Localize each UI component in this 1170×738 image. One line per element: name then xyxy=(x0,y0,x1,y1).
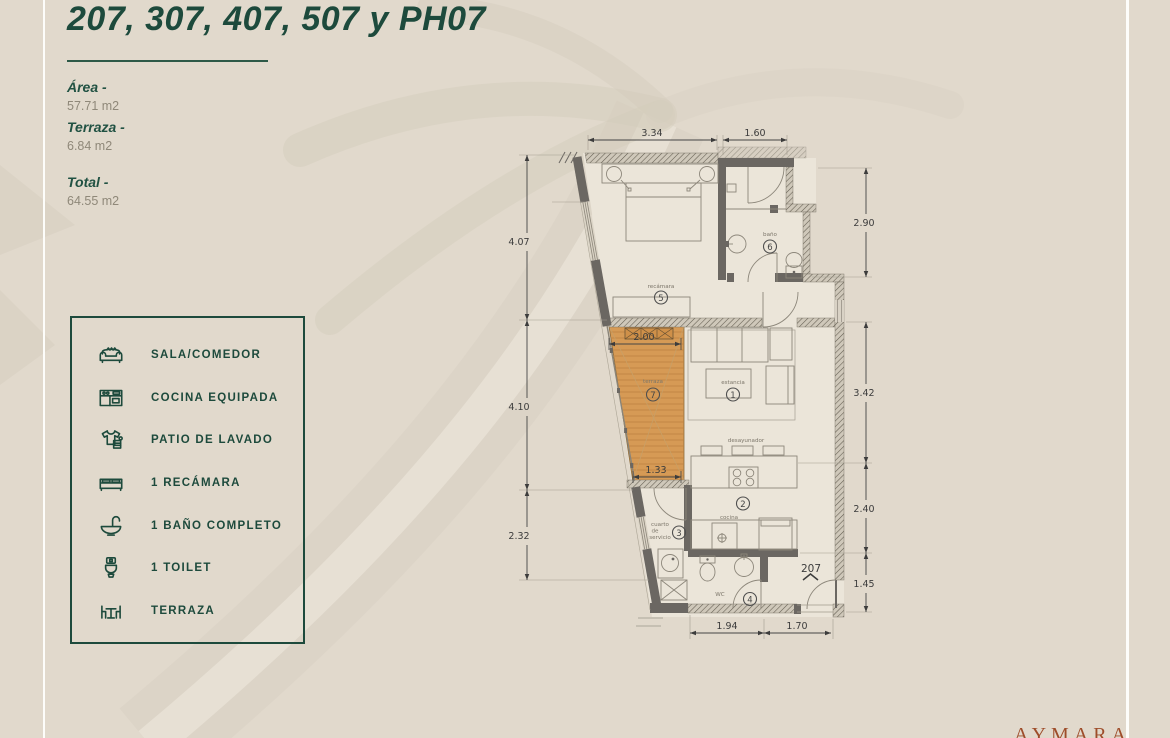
dim-right-bano: 2.90 xyxy=(853,218,874,229)
brand-logo: AYMARA xyxy=(1014,724,1131,738)
dim-left-terraza: 4.10 xyxy=(508,402,529,413)
dim-terraza-bottom: 1.33 xyxy=(645,465,666,476)
terrace-deck xyxy=(600,326,690,482)
legend-label: TERRAZA xyxy=(151,605,215,617)
label-cuarto-2: de xyxy=(652,529,660,535)
dim-right-cocina: 2.40 xyxy=(853,504,874,515)
dim-top-bano: 1.60 xyxy=(744,128,765,139)
left-rule xyxy=(43,0,45,738)
legend-item-toilet: 1 TOILET xyxy=(72,553,303,583)
dim-left-servicio: 2.32 xyxy=(508,531,529,542)
bath-sink-icon xyxy=(96,511,126,541)
right-wall-window xyxy=(835,300,844,322)
num-cuarto: 3 xyxy=(676,529,681,539)
area-value: 57.71 m2 xyxy=(67,97,125,115)
dim-left-recamara: 4.07 xyxy=(508,237,529,248)
num-cocina: 2 xyxy=(740,500,745,510)
num-recamara: 5 xyxy=(658,294,663,304)
terraza-label: Terraza - xyxy=(67,118,125,137)
flyer-page: 207, 307, 407, 507 y PH07 Área - 57.71 m… xyxy=(0,0,1170,738)
legend-item-bano: 1 BAÑO COMPLETO xyxy=(72,511,303,541)
legend-label: SALA/COMEDOR xyxy=(151,349,261,361)
laundry-icon xyxy=(96,425,126,455)
right-rule xyxy=(1126,0,1129,738)
legend-label: 1 TOILET xyxy=(151,562,212,574)
dim-bottom-entrada: 1.70 xyxy=(786,621,807,632)
dim-terraza-top: 2.00 xyxy=(633,332,654,343)
dim-right-estancia: 3.42 xyxy=(853,388,874,399)
bed-icon xyxy=(96,468,126,498)
sofa-icon xyxy=(96,340,126,370)
floorplan-drawing: 207 3.34 1.60 4.07 4.10 xyxy=(490,110,970,655)
legend-item-recamara: 1 RECÁMARA xyxy=(72,468,303,498)
toilet-icon xyxy=(96,553,126,583)
kitchen-icon xyxy=(96,383,126,413)
label-cocina: cocina xyxy=(720,515,738,521)
num-bano: 6 xyxy=(767,243,772,253)
label-bano: baño xyxy=(763,232,778,238)
legend-item-cocina: COCINA EQUIPADA xyxy=(72,383,303,413)
dim-bottom-wc: 1.94 xyxy=(716,621,737,632)
label-cuarto-1: cuarto xyxy=(651,522,670,528)
num-wc: 4 xyxy=(747,596,752,606)
label-terraza: terraza xyxy=(643,379,663,385)
legend-item-patio: PATIO DE LAVADO xyxy=(72,425,303,455)
legend-label: PATIO DE LAVADO xyxy=(151,434,273,446)
total-label: Total - xyxy=(67,173,125,192)
area-label: Área - xyxy=(67,78,125,97)
page-title: 207, 307, 407, 507 y PH07 xyxy=(67,0,486,39)
label-estancia: estancia xyxy=(721,380,745,386)
label-cuarto-3: servicio xyxy=(649,535,671,541)
label-recamara: recámara xyxy=(648,283,675,290)
title-underline xyxy=(67,60,268,62)
legend-label: 1 RECÁMARA xyxy=(151,477,241,489)
label-wc: WC xyxy=(715,592,725,598)
dim-right-entrada: 1.45 xyxy=(853,579,874,590)
total-value: 64.55 m2 xyxy=(67,192,125,210)
legend-item-terraza: TERRAZA xyxy=(72,596,303,626)
legend-item-sala: SALA/COMEDOR xyxy=(72,340,303,370)
dim-top-recamara: 3.34 xyxy=(641,128,662,139)
unit-number: 207 xyxy=(801,563,821,575)
label-desayunador: desayunador xyxy=(728,438,765,444)
legend-label: COCINA EQUIPADA xyxy=(151,392,278,404)
num-terraza: 7 xyxy=(650,391,655,401)
terraza-value: 6.84 m2 xyxy=(67,137,125,155)
area-summary: Área - 57.71 m2 Terraza - 6.84 m2 Total … xyxy=(67,78,125,213)
amenities-legend: SALA/COMEDOR COCINA EQUIPADA PATIO DE LA… xyxy=(70,316,305,644)
num-estancia: 1 xyxy=(730,391,735,401)
terrace-icon xyxy=(96,596,126,626)
legend-label: 1 BAÑO COMPLETO xyxy=(151,520,282,532)
